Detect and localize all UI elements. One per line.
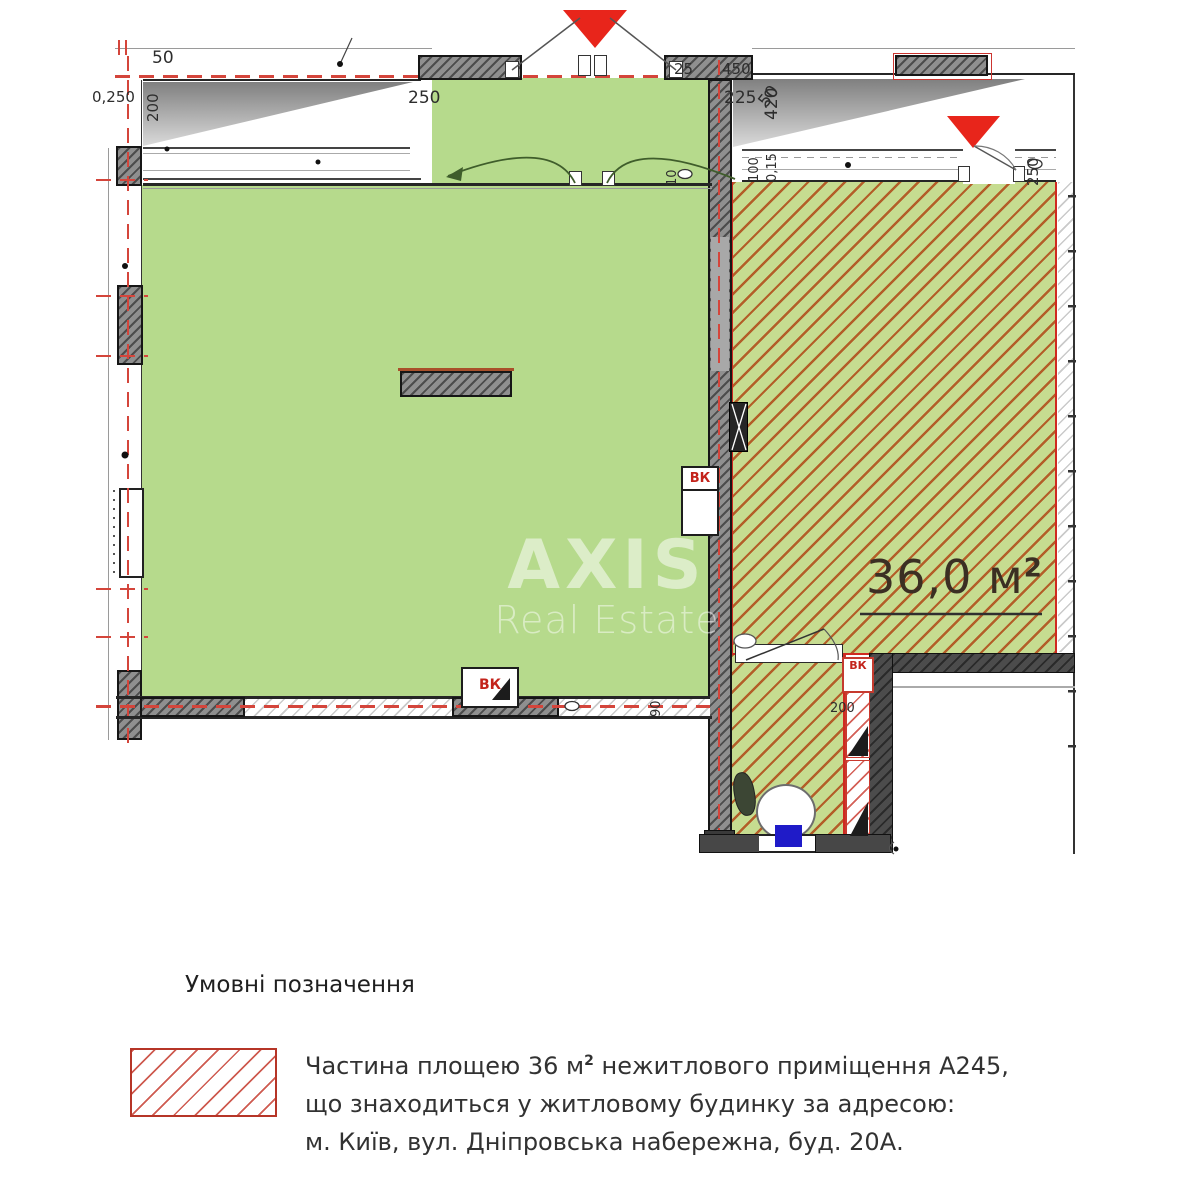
vent-duct (729, 402, 748, 452)
dim-label: 450 (722, 62, 751, 77)
dim-label: 420 (764, 88, 781, 120)
wall-line (752, 48, 1075, 49)
axis-mark (125, 40, 127, 55)
entrance-marker-icon (563, 10, 627, 48)
area-value: 36,0 м (866, 550, 1024, 604)
wall-block (895, 55, 988, 76)
vent-shaft-box: ВК (461, 667, 519, 708)
sill-line (143, 153, 410, 154)
axis-line-red (96, 705, 710, 708)
axis-line-red (718, 60, 720, 850)
legend-title: Умовні позначення (185, 972, 415, 998)
dim-label: 50 (152, 50, 174, 67)
dim-label: 200 (830, 702, 855, 715)
wall-block-frame (893, 53, 992, 80)
axis-mark (96, 295, 148, 297)
wall-line (108, 148, 109, 740)
legend-text-line-3: м. Київ, вул. Дніпровська набережна, буд… (305, 1128, 904, 1156)
axis-mark (96, 588, 148, 590)
door-leaf (569, 171, 582, 186)
window-band-line (143, 188, 712, 189)
door-leaf (958, 166, 970, 182)
legend-line1-sup: 2 (584, 1053, 594, 1069)
living-room-area (142, 183, 708, 700)
dim-label: 0,250 (92, 90, 135, 105)
vent-shaft-label: ВК (479, 677, 501, 693)
corridor-door-lintel (735, 644, 843, 663)
dim-label: 200 (146, 93, 161, 122)
floor-plan-page: ВК ВК ВК (0, 0, 1200, 1188)
shaft-cell (846, 760, 870, 838)
room-pier (400, 371, 512, 397)
dim-label: 0,15 (766, 153, 779, 182)
axis-mark (96, 636, 148, 638)
legend-line1-b: нежитлового приміщення А245, (594, 1052, 1009, 1080)
legend: Умовні позначення Частина площею 36 м2 н… (0, 940, 1200, 1188)
thick-wall-horizontal (869, 653, 1075, 673)
door-leaf (602, 171, 615, 186)
dim-label: 25 (674, 62, 693, 77)
dim-label: 10 (666, 169, 679, 186)
legend-text-line-2: що знаходиться у житловому будинку за ад… (305, 1090, 955, 1118)
door-gap (963, 146, 1015, 184)
axis-mark (96, 355, 148, 357)
window-ticks (113, 490, 115, 576)
legend-line1-a: Частина площею 36 м (305, 1052, 584, 1080)
wall-pier (117, 285, 143, 365)
vent-shaft-box: ВК (681, 466, 719, 536)
dim-label: 250 (408, 90, 440, 107)
sill-line (143, 178, 421, 180)
door-leaf (578, 55, 591, 76)
axis-line-red (127, 56, 129, 748)
window-band-line (143, 183, 712, 186)
door-jamb (505, 61, 519, 78)
dim-label: 100 (748, 157, 761, 182)
axis-mark (118, 40, 120, 55)
window (119, 488, 144, 578)
door-sensor-marker (775, 825, 802, 847)
door-gap (522, 48, 664, 78)
door-leaf (594, 55, 607, 76)
bottom-wall (699, 834, 761, 853)
vent-shaft-label: ВК (683, 468, 717, 491)
floor-plan: ВК ВК ВК (0, 0, 1200, 900)
sill-line (143, 147, 410, 149)
axis-line-red (115, 75, 712, 78)
wall-line (893, 686, 1075, 688)
wall-opening (711, 237, 729, 371)
area-label: 36,0 м2 (866, 550, 1043, 604)
dim-label: 225 (724, 90, 756, 107)
wall-line (143, 79, 421, 81)
area-sup: 2 (1024, 554, 1043, 584)
axis-mark (96, 179, 148, 181)
bottom-wall (815, 834, 891, 853)
legend-text-line-1: Частина площею 36 м2 нежитлового приміще… (305, 1052, 1009, 1080)
legend-hatch-swatch (130, 1048, 277, 1117)
sill-line (143, 170, 410, 171)
vent-shaft-box: ВК (842, 657, 874, 693)
dim-label: 250 (1026, 157, 1041, 186)
vent-shaft-label: ВК (849, 659, 866, 672)
dim-label: 90 (650, 700, 663, 717)
